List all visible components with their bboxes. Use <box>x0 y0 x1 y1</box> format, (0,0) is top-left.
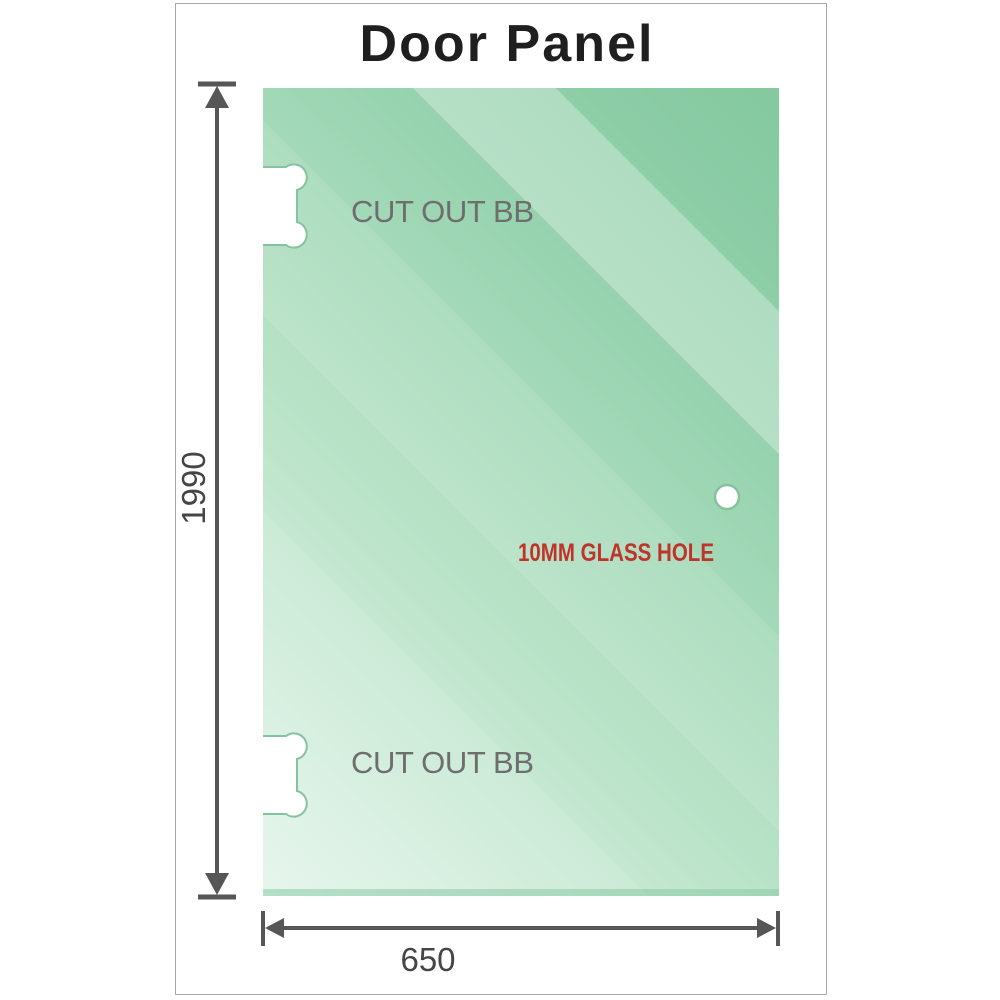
height-dimension: 1990 <box>175 84 236 897</box>
width-dimension-arrow-right <box>757 918 776 938</box>
glass-bottom-edge <box>263 889 779 896</box>
cutout-top-label: CUT OUT BB <box>351 194 536 229</box>
glass-hole-label: 10MM GLASS HOLE <box>518 539 714 567</box>
door-panel-diagram: Door Panel CUT OUT BB CUT OUT BB 10MM GL… <box>0 0 1000 1000</box>
height-dimension-value: 1990 <box>175 451 212 524</box>
height-dimension-arrow-down <box>205 873 229 895</box>
width-dimension: 650 <box>263 911 778 978</box>
width-dimension-arrow-left <box>265 918 284 938</box>
height-dimension-arrow-up <box>205 86 229 108</box>
hinge-cutout-bottom <box>246 733 307 816</box>
hinge-cutout-top <box>246 164 307 247</box>
cutout-bottom-label: CUT OUT BB <box>351 745 536 780</box>
door-panel-diagram-page: Door Panel CUT OUT BB CUT OUT BB 10MM GL… <box>0 0 1000 1000</box>
glass-hole <box>715 485 739 509</box>
page-title: Door Panel <box>360 15 653 73</box>
width-dimension-value: 650 <box>400 941 455 978</box>
